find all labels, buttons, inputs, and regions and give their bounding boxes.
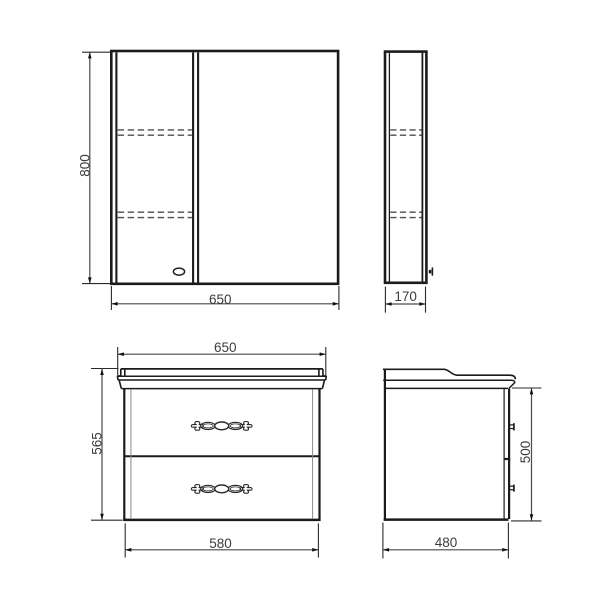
svg-text:565: 565: [90, 432, 105, 455]
svg-text:500: 500: [518, 441, 533, 464]
svg-text:650: 650: [214, 340, 237, 355]
svg-text:480: 480: [435, 535, 458, 550]
svg-text:170: 170: [394, 289, 417, 304]
svg-text:650: 650: [209, 292, 232, 307]
svg-text:800: 800: [77, 154, 92, 177]
svg-text:580: 580: [209, 536, 232, 551]
